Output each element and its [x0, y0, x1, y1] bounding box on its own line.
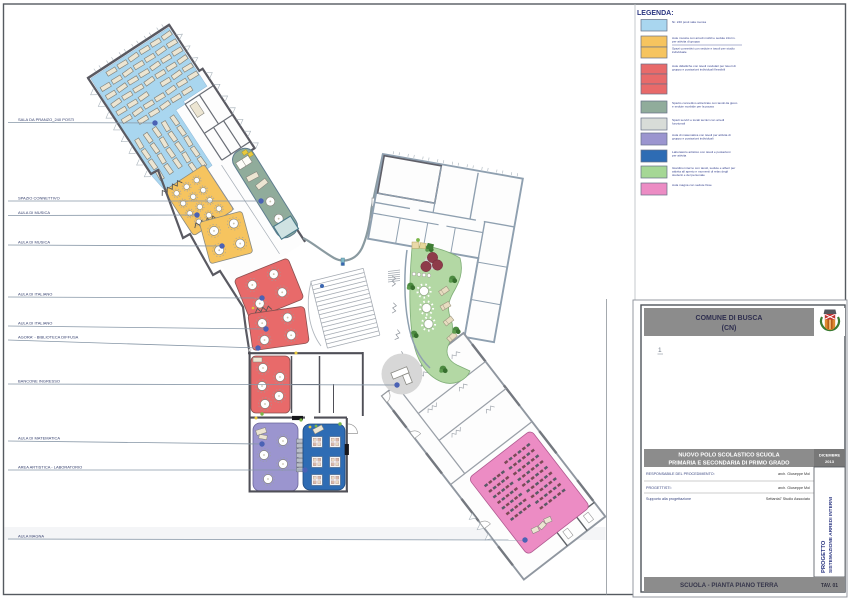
svg-text:(CN): (CN) [722, 325, 737, 332]
svg-text:AULA DI MATEMATICA: AULA DI MATEMATICA [18, 436, 60, 441]
svg-text:arch. Giuseppe Mol: arch. Giuseppe Mol [778, 472, 810, 476]
svg-text:AGORA' - BIBLIOTECA DIFFUSA: AGORA' - BIBLIOTECA DIFFUSA [18, 335, 79, 340]
svg-text:COMUNE DI BUSCA: COMUNE DI BUSCA [696, 315, 763, 322]
svg-text:SALA DA PRANZO_240 POSTI: SALA DA PRANZO_240 POSTI [18, 117, 74, 122]
svg-text:arch. Giuseppe Mol: arch. Giuseppe Mol [778, 486, 810, 490]
svg-text:PRIMARIA E SECONDARIA DI PRIMO: PRIMARIA E SECONDARIA DI PRIMO GRADO [668, 461, 790, 467]
svg-text:SISTEMAZIONE ARREDI INTERNI: SISTEMAZIONE ARREDI INTERNI [828, 496, 834, 573]
svg-text:Supporto alla progettazione: Supporto alla progettazione [646, 497, 691, 501]
svg-text:BANCONE INGRESSO: BANCONE INGRESSO [18, 379, 60, 384]
svg-text:AULA DI MUSICA: AULA DI MUSICA [18, 210, 50, 215]
svg-text:Settanta7 Studio Associato: Settanta7 Studio Associato [766, 497, 810, 501]
svg-text:NUOVO POLO SCOLASTICO SCUOLA: NUOVO POLO SCOLASTICO SCUOLA [678, 453, 779, 459]
svg-text:PROGETTISTI:: PROGETTISTI: [646, 486, 672, 490]
svg-text:SPAZIO CONNETTIVO: SPAZIO CONNETTIVO [18, 196, 60, 201]
svg-text:AULA DI ITALIANO: AULA DI ITALIANO [18, 321, 52, 326]
svg-text:SCUOLA - PIANTA PIANO TERRA: SCUOLA - PIANTA PIANO TERRA [680, 582, 779, 589]
svg-text:AULA MAGNA: AULA MAGNA [18, 534, 44, 539]
svg-text:AREA ARTISTICA - LABORATORIO: AREA ARTISTICA - LABORATORIO [18, 465, 82, 470]
svg-text:1: 1 [658, 347, 662, 354]
svg-text:Aula magna con sedute fisse: Aula magna con sedute fisse [672, 183, 712, 187]
svg-text:PROGETTO: PROGETTO [821, 540, 827, 573]
svg-text:TAV. 01: TAV. 01 [821, 583, 838, 589]
svg-text:RESPONSABILE DEL PROCEDIMENTO:: RESPONSABILE DEL PROCEDIMENTO: [646, 472, 715, 476]
svg-text:AULA DI ITALIANO: AULA DI ITALIANO [18, 292, 52, 297]
svg-text:Nr. 240 posti sala mensa: Nr. 240 posti sala mensa [672, 20, 706, 24]
svg-text:LEGENDA:: LEGENDA: [637, 10, 674, 17]
svg-text:AULA DI MUSICA: AULA DI MUSICA [18, 240, 50, 245]
svg-text:2013: 2013 [825, 459, 835, 464]
svg-text:DICEMBRE: DICEMBRE [819, 453, 841, 458]
